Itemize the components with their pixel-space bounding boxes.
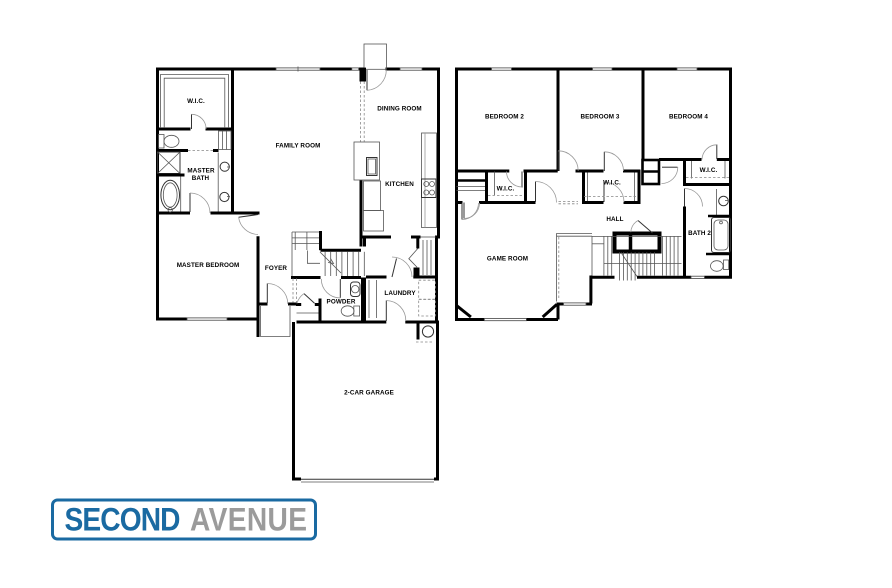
svg-text:W.I.C.: W.I.C. (603, 179, 621, 186)
svg-text:HALL: HALL (606, 216, 623, 223)
svg-text:LAUNDRY: LAUNDRY (384, 290, 416, 297)
svg-text:MASTER: MASTER (187, 167, 215, 174)
svg-text:GAME ROOM: GAME ROOM (487, 255, 528, 262)
svg-text:BEDROOM 4: BEDROOM 4 (669, 113, 708, 120)
svg-text:FOYER: FOYER (265, 265, 288, 272)
svg-text:DINING ROOM: DINING ROOM (377, 106, 421, 113)
svg-text:W.I.C.: W.I.C. (497, 185, 515, 192)
svg-text:AVENUE: AVENUE (190, 503, 307, 538)
svg-text:SECOND: SECOND (65, 503, 180, 538)
svg-text:BEDROOM 2: BEDROOM 2 (485, 113, 524, 120)
svg-text:BATH 2: BATH 2 (688, 230, 711, 237)
svg-text:BEDROOM 3: BEDROOM 3 (580, 113, 619, 120)
svg-text:2-CAR GARAGE: 2-CAR GARAGE (344, 389, 394, 396)
svg-text:POWDER: POWDER (327, 298, 356, 305)
svg-text:BATH: BATH (192, 175, 210, 182)
svg-text:FAMILY ROOM: FAMILY ROOM (276, 143, 321, 150)
svg-text:W.I.C.: W.I.C. (187, 98, 205, 105)
svg-text:W.I.C.: W.I.C. (700, 167, 718, 174)
svg-text:KITCHEN: KITCHEN (385, 181, 414, 188)
svg-text:MASTER BEDROOM: MASTER BEDROOM (177, 262, 240, 269)
